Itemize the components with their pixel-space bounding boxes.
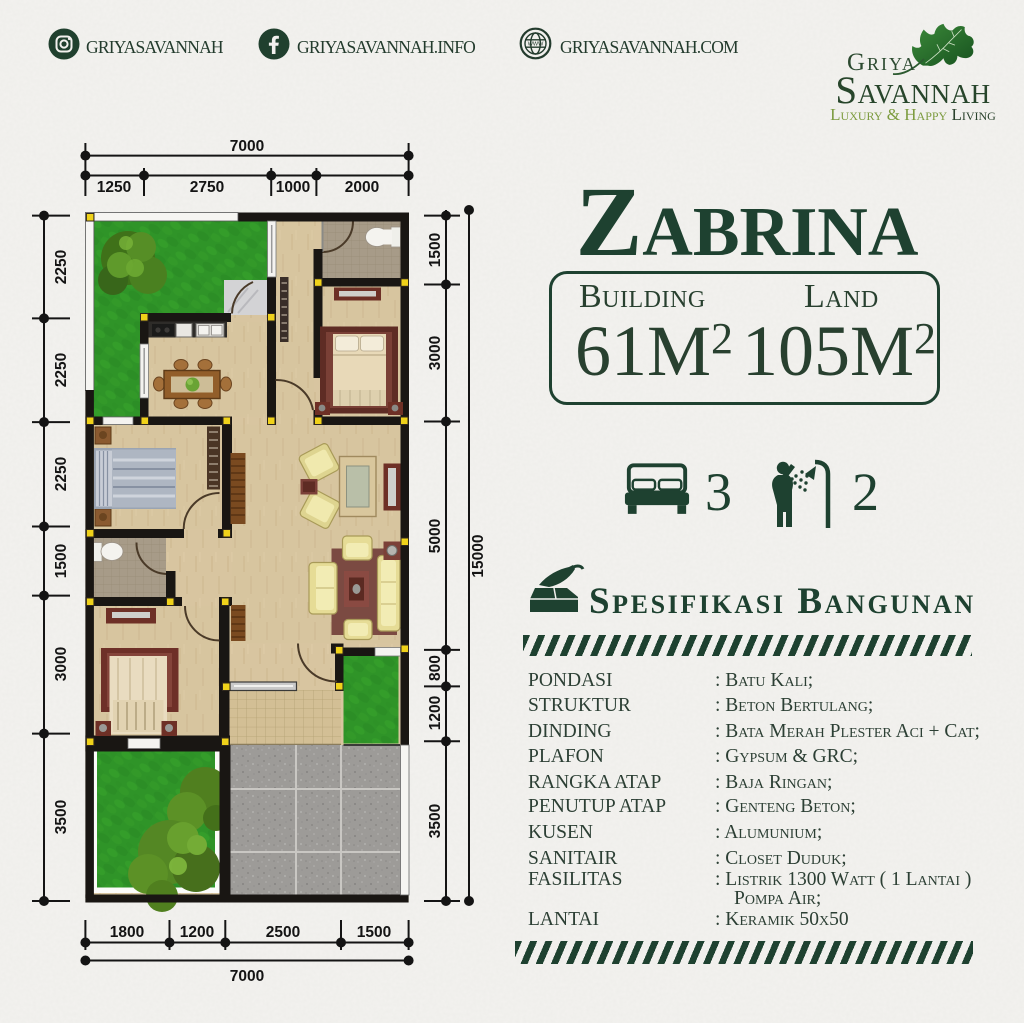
svg-text:2250: 2250 (53, 353, 70, 387)
svg-text:3000: 3000 (427, 336, 444, 370)
svg-text:1800: 1800 (110, 924, 144, 941)
svg-text:2250: 2250 (53, 457, 70, 491)
svg-text:1500: 1500 (53, 544, 70, 578)
svg-text:15000: 15000 (470, 534, 487, 577)
svg-text:3000: 3000 (53, 647, 70, 681)
svg-text:3500: 3500 (427, 804, 444, 838)
svg-text:1200: 1200 (427, 696, 444, 730)
svg-text:5000: 5000 (427, 519, 444, 553)
svg-text:3500: 3500 (53, 800, 70, 834)
svg-text:7000: 7000 (230, 138, 264, 155)
svg-text:7000: 7000 (230, 968, 264, 985)
svg-text:2000: 2000 (345, 179, 379, 196)
svg-text:2250: 2250 (53, 250, 70, 284)
svg-text:1200: 1200 (180, 924, 214, 941)
svg-text:1000: 1000 (276, 179, 310, 196)
svg-text:1500: 1500 (357, 924, 391, 941)
svg-text:2500: 2500 (266, 924, 300, 941)
svg-text:1500: 1500 (427, 233, 444, 267)
svg-text:WWW: WWW (528, 41, 544, 47)
svg-text:1250: 1250 (97, 179, 131, 196)
svg-text:2750: 2750 (190, 179, 224, 196)
svg-text:800: 800 (427, 655, 444, 681)
